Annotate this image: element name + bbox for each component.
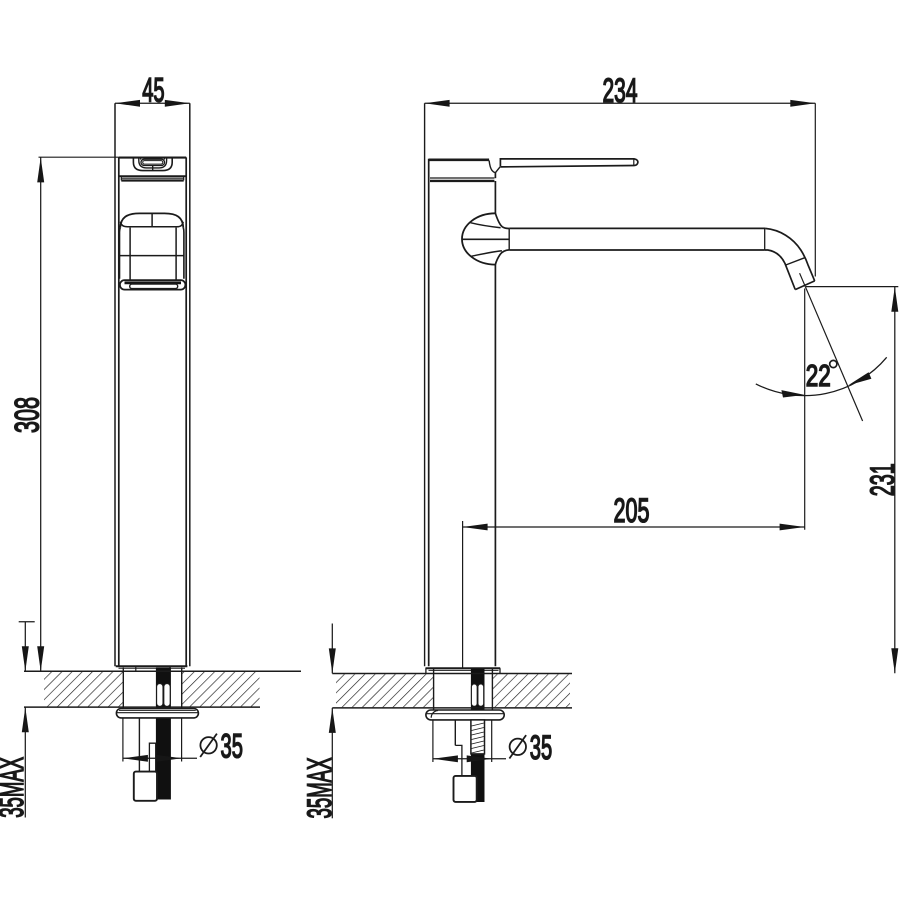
svg-text:35: 35 <box>221 728 243 766</box>
svg-text:205: 205 <box>614 492 650 530</box>
svg-text:231: 231 <box>864 463 900 496</box>
svg-text:35: 35 <box>530 729 552 767</box>
svg-text:234: 234 <box>603 72 638 110</box>
svg-text:308: 308 <box>9 397 47 433</box>
svg-text:45: 45 <box>142 71 164 109</box>
svg-text:35MAX: 35MAX <box>0 757 31 818</box>
svg-text:35MAX: 35MAX <box>301 758 339 819</box>
svg-text:22: 22 <box>806 358 831 393</box>
